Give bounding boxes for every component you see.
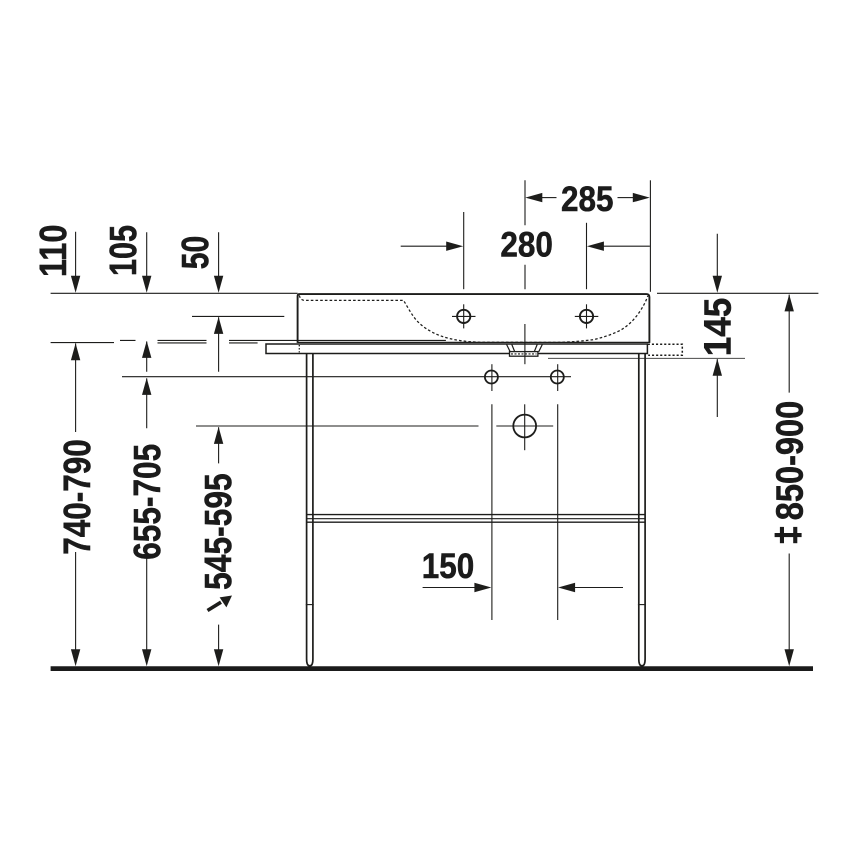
svg-text:110: 110: [33, 225, 75, 277]
svg-text:850-900: 850-900: [770, 401, 812, 521]
svg-text:50: 50: [175, 236, 217, 270]
svg-text:150: 150: [422, 547, 475, 586]
svg-text:145: 145: [698, 298, 740, 357]
svg-text:740-790: 740-790: [57, 439, 99, 555]
svg-text:545-595: 545-595: [198, 473, 240, 590]
svg-text:105: 105: [103, 225, 145, 276]
svg-text:655-705: 655-705: [127, 444, 169, 560]
svg-text:280: 280: [500, 225, 553, 264]
svg-text:285: 285: [561, 180, 614, 219]
